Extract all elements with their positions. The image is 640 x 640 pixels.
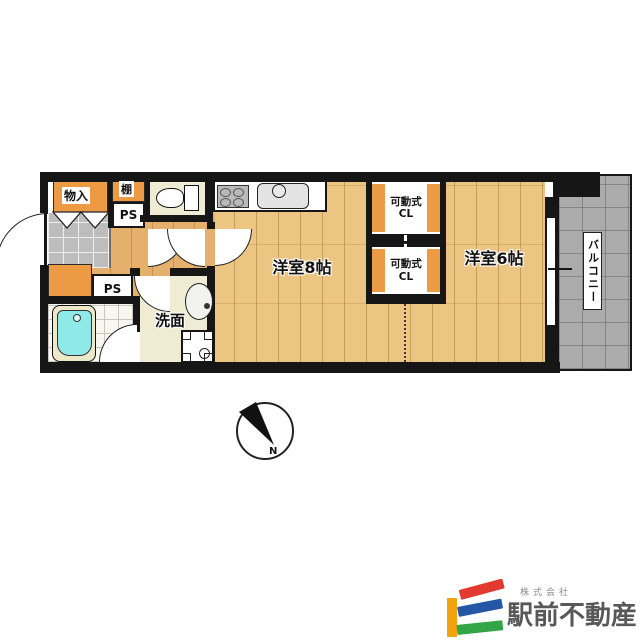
room-6-label: 洋室6帖 — [464, 245, 523, 269]
logo-bar-green — [456, 620, 503, 635]
bifold-door-symbol — [52, 211, 110, 231]
closet-upper-label-2: CL — [397, 208, 415, 220]
window-center-tick — [548, 268, 572, 270]
wall — [140, 215, 213, 222]
logo-bar-blue — [457, 599, 503, 617]
wall — [48, 296, 140, 304]
entrance-door-arc — [0, 213, 48, 265]
pan-corner — [183, 353, 191, 361]
bathtub-drain — [73, 314, 81, 322]
wall — [366, 294, 446, 304]
washroom-label: 洗面 — [155, 310, 185, 331]
stove-burner — [233, 188, 244, 197]
stove-burner — [220, 188, 231, 197]
compass-north-label: N — [269, 446, 277, 457]
room-divider-dotted-line — [404, 304, 406, 362]
compass: N — [233, 399, 297, 463]
room-8-label: 洋室8帖 — [272, 254, 331, 278]
closet-side-panel — [372, 184, 385, 232]
closet-side-panel — [427, 249, 440, 292]
wall — [40, 362, 560, 373]
logo-bar-red — [459, 579, 505, 600]
wall — [40, 265, 48, 373]
wall — [130, 268, 140, 276]
company-name: 駅前不動産 — [507, 595, 637, 632]
kitchen-stove — [217, 185, 249, 208]
pan-corner — [204, 332, 212, 340]
wall — [40, 182, 48, 213]
logo-bar-yellow — [447, 598, 457, 637]
closet-upper-label-1: 可動式 — [388, 196, 424, 208]
pan-corner — [183, 332, 191, 340]
wall — [553, 182, 600, 197]
wall — [207, 222, 215, 229]
window-frame-line — [545, 218, 547, 325]
wall — [170, 268, 207, 276]
stove-burner — [220, 198, 231, 207]
toilet-bowl — [156, 188, 184, 208]
floor-plan-canvas: PS PS 可動式 CL 可動式 CL — [0, 0, 640, 640]
company-logo: 株式会社 駅前不動産 — [443, 584, 640, 638]
wall — [545, 325, 557, 362]
window-frame-line — [555, 218, 557, 325]
wall — [545, 197, 557, 218]
stove-burner — [233, 198, 244, 207]
washbasin — [185, 283, 213, 320]
washing-machine-pan — [181, 330, 214, 363]
closet-side-panel — [427, 184, 440, 232]
closet-lower-label-2: CL — [397, 271, 415, 283]
bathtub — [52, 305, 96, 362]
pan-drain — [199, 348, 210, 359]
sink-faucet — [272, 184, 286, 198]
pipe-space-bottom-label: PS — [104, 282, 121, 296]
entrance-door-leaf — [44, 213, 47, 265]
shelf-label: 棚 — [119, 181, 134, 197]
pipe-space-top-label: PS — [120, 208, 137, 222]
washbasin-faucet — [204, 303, 210, 309]
wall — [145, 182, 150, 215]
toilet-tank — [184, 185, 199, 211]
storage-label: 物入 — [62, 187, 90, 204]
closet-lower-label-1: 可動式 — [388, 258, 424, 270]
closet-side-panel — [372, 249, 385, 292]
balcony-label: バルコニー — [583, 232, 602, 310]
